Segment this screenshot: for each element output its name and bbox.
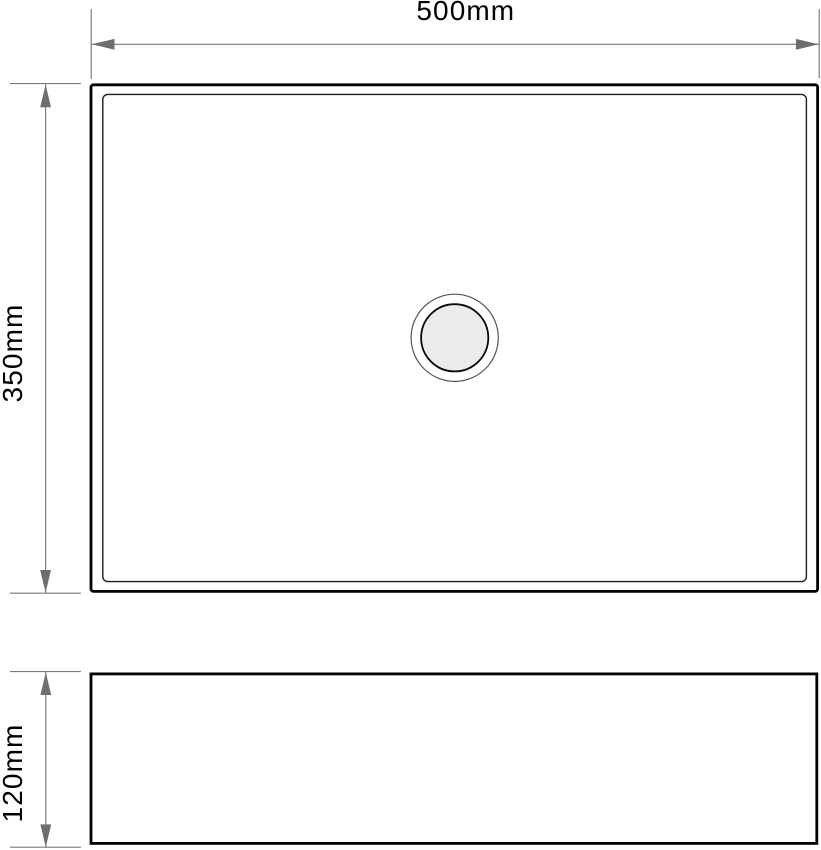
svg-text:120mm: 120mm — [0, 724, 28, 823]
svg-text:350mm: 350mm — [0, 304, 28, 403]
svg-text:500mm: 500mm — [416, 0, 515, 26]
